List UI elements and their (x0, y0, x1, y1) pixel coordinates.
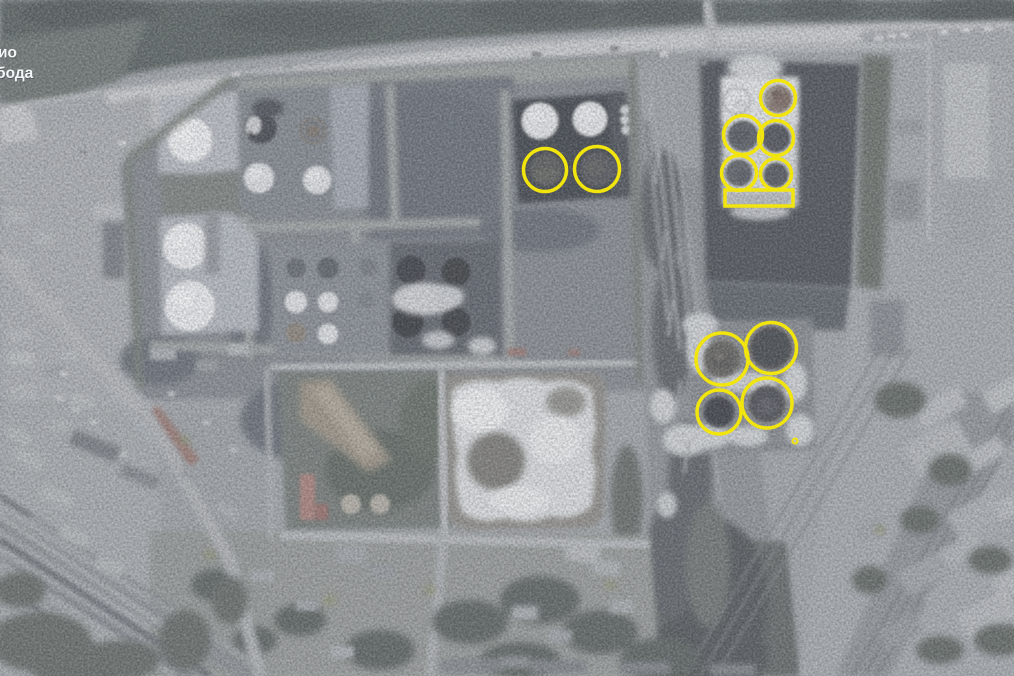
svg-text:бода: бода (0, 65, 34, 82)
svg-text:ио: ио (0, 45, 17, 62)
